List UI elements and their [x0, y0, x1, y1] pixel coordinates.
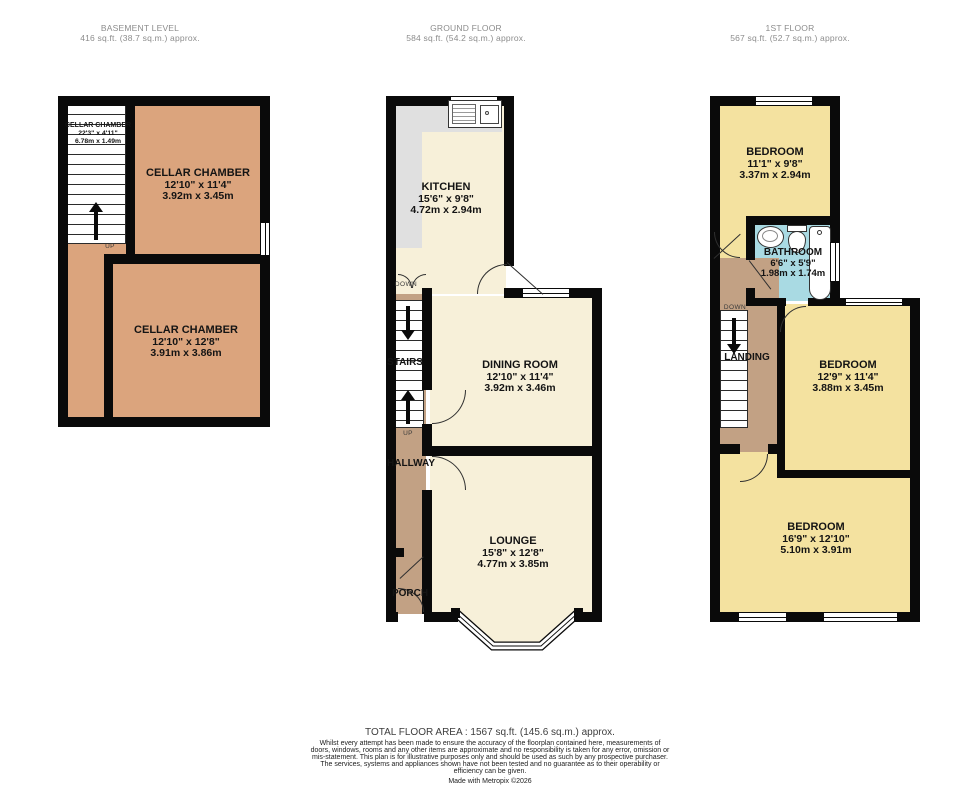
- room-label-bedroom-rear: BEDROOM 11'1" x 9'8" 3.37m x 2.94m: [705, 147, 845, 182]
- stairs-label: STAIRS: [382, 357, 428, 368]
- interior-wall: [746, 216, 840, 225]
- room-dim-metric: 4.77m x 3.85m: [443, 559, 583, 571]
- room-name: BEDROOM: [705, 147, 845, 159]
- outer-wall: [58, 417, 270, 427]
- room-label-bathroom: BATHROOM 6'6" x 5'9" 1.98m x 1.74m: [722, 248, 864, 280]
- credit-text: Made with Metropix ©2026: [310, 778, 670, 785]
- window: [522, 288, 570, 298]
- floor-area: 584 sq.ft. (54.2 sq.m.) approx.: [366, 34, 566, 44]
- arrow-shaft: [94, 211, 98, 240]
- outer-wall: [787, 612, 823, 622]
- arrow-head: [401, 330, 415, 340]
- window-centerline: [824, 617, 897, 618]
- room-label-kitchen: KITCHEN 15'6" x 9'8" 4.72m x 2.94m: [376, 182, 516, 217]
- interior-wall: [777, 444, 785, 478]
- basin-inner: [762, 230, 778, 242]
- room-dim-metric: 6.78m x 1.49m: [52, 138, 144, 146]
- room-dim-imperial: 22'3" x 4'11": [52, 130, 144, 138]
- up-arrow-icon: [400, 390, 416, 426]
- down-label: DOWN: [717, 304, 753, 311]
- arrow-shaft: [732, 318, 736, 345]
- room-dim-metric: 5.10m x 3.91m: [746, 545, 886, 557]
- interior-wall: [785, 470, 914, 478]
- floor-area: 567 sq.ft. (52.7 sq.m.) approx.: [690, 34, 890, 44]
- disclaimer-text: Whilst every attempt has been made to en…: [310, 741, 670, 776]
- outer-wall: [898, 612, 920, 622]
- interior-wall: [104, 254, 113, 427]
- floorplan-page: BASEMENT LEVEL 416 sq.ft. (38.7 sq.m.) a…: [0, 0, 980, 789]
- outer-wall: [386, 612, 398, 622]
- interior-wall: [104, 254, 270, 264]
- outer-wall: [504, 96, 514, 266]
- room-dim-metric: 3.92m x 3.46m: [450, 383, 590, 395]
- arrow-shaft: [406, 306, 410, 331]
- ground-header: GROUND FLOOR 584 sq.ft. (54.2 sq.m.) app…: [366, 24, 566, 43]
- window: [260, 222, 270, 256]
- basin-icon: [757, 226, 784, 248]
- room-name: BEDROOM: [746, 522, 886, 534]
- room-name: CELLAR CHAMBER: [128, 168, 268, 180]
- up-label: UP: [393, 430, 423, 437]
- arrow-shaft: [406, 399, 410, 424]
- room-name: CELLAR CHAMBER: [116, 325, 256, 337]
- window-centerline: [739, 617, 786, 618]
- interior-wall: [710, 444, 740, 454]
- outer-wall: [910, 298, 920, 622]
- room-dim-metric: 3.37m x 2.94m: [705, 170, 845, 182]
- bathtub-tap: [817, 230, 822, 235]
- down-arrow-icon: [726, 316, 742, 354]
- room-name: DINING ROOM: [450, 360, 590, 372]
- down-arrow-icon: [400, 304, 416, 340]
- draining-board: [452, 104, 476, 124]
- landing-label: LANDING: [719, 352, 775, 363]
- room-label-cellar-small: CELLAR CHAMBER 22'3" x 4'11" 6.78m x 1.4…: [52, 122, 144, 146]
- room-name: BEDROOM: [778, 360, 918, 372]
- room-name: CELLAR CHAMBER: [52, 122, 144, 130]
- total-floor-area: TOTAL FLOOR AREA : 1567 sq.ft. (145.6 sq…: [280, 727, 700, 738]
- interior-wall: [430, 446, 594, 456]
- room-name: BATHROOM: [722, 248, 864, 259]
- room-dim-metric: 4.72m x 2.94m: [376, 205, 516, 217]
- outer-wall: [574, 612, 602, 622]
- outer-wall: [710, 612, 738, 622]
- room-label-cellar-bottom: CELLAR CHAMBER 12'10" x 12'8" 3.91m x 3.…: [116, 325, 256, 360]
- window: [823, 612, 898, 622]
- sink-basin: [480, 105, 499, 124]
- outer-wall: [58, 96, 270, 106]
- up-label: UP: [95, 243, 125, 250]
- window-centerline: [523, 293, 569, 294]
- window: [845, 298, 903, 306]
- interior-wall: [422, 288, 432, 390]
- kitchen-sink-unit: [448, 100, 502, 128]
- hallway-label: HALLWAY: [384, 458, 438, 469]
- room-label-lounge: LOUNGE 15'8" x 12'8" 4.77m x 3.85m: [443, 536, 583, 571]
- down-label: DOWN: [391, 281, 421, 288]
- window-centerline: [846, 302, 902, 303]
- room-label-bedroom-front: BEDROOM 16'9" x 12'10" 5.10m x 3.91m: [746, 522, 886, 557]
- room-dim-metric: 3.91m x 3.86m: [116, 348, 256, 360]
- up-arrow-icon: [88, 202, 104, 242]
- room-label-cellar-top: CELLAR CHAMBER 12'10" x 11'4" 3.92m x 3.…: [128, 168, 268, 203]
- room-dim-metric: 3.92m x 3.45m: [128, 191, 268, 203]
- first-floor-header: 1ST FLOOR 567 sq.ft. (52.7 sq.m.) approx…: [690, 24, 890, 43]
- bay-window: [440, 600, 600, 660]
- tap-icon: [485, 111, 489, 115]
- room-dim-metric: 1.98m x 1.74m: [722, 269, 864, 280]
- porch-label: PORCH: [387, 588, 433, 599]
- room-dim-metric: 3.88m x 3.45m: [778, 383, 918, 395]
- room-name: LOUNGE: [443, 536, 583, 548]
- room-label-dining: DINING ROOM 12'10" x 11'4" 3.92m x 3.46m: [450, 360, 590, 395]
- basement-header: BASEMENT LEVEL 416 sq.ft. (38.7 sq.m.) a…: [40, 24, 240, 43]
- window: [738, 612, 787, 622]
- room-label-bedroom-middle: BEDROOM 12'9" x 11'4" 3.88m x 3.45m: [778, 360, 918, 395]
- floor-area: 416 sq.ft. (38.7 sq.m.) approx.: [40, 34, 240, 44]
- room-name: KITCHEN: [376, 182, 516, 194]
- interior-wall: [396, 548, 404, 557]
- window-centerline: [756, 101, 812, 102]
- window: [755, 96, 813, 106]
- window-centerline: [265, 223, 266, 255]
